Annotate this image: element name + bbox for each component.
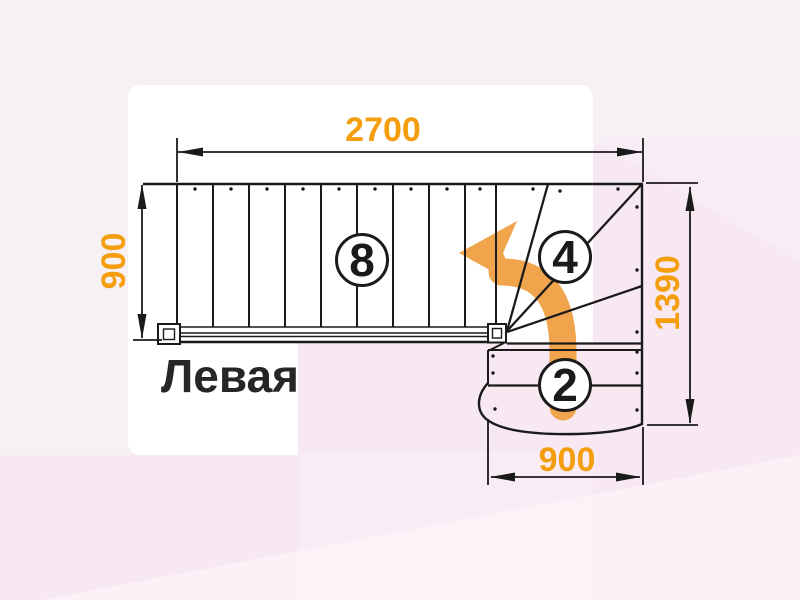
plan-title: Левая — [161, 352, 321, 400]
dim-arrow-down-icon — [138, 314, 147, 339]
stringer-rail — [158, 324, 506, 344]
step-count-lower: 2 — [538, 358, 592, 412]
step-count-winder-value: 4 — [552, 234, 578, 280]
dimension-label-top: 2700 — [323, 112, 443, 148]
dimension-label-right: 1390 — [650, 238, 686, 348]
turn-left-arrowhead-icon — [459, 221, 517, 285]
dim-arrow-down-icon — [686, 399, 695, 424]
dim-arrow-up-icon — [686, 186, 695, 211]
step-count-straight: 8 — [335, 233, 389, 287]
staircase-plan-screenshot: 8 4 2 2700 900 1390 900 Левая — [0, 0, 800, 600]
dimension-label-left: 900 — [96, 216, 132, 306]
dimension-label-bottom: 900 — [527, 442, 607, 478]
dim-arrow-right-icon — [617, 148, 642, 157]
dim-arrow-left-icon — [490, 473, 515, 482]
dimension-left — [133, 185, 162, 340]
dim-arrow-up-icon — [138, 184, 147, 209]
dim-arrow-left-icon — [178, 148, 203, 157]
step-count-winder: 4 — [538, 230, 592, 284]
step-count-straight-value: 8 — [349, 237, 375, 283]
step-count-lower-value: 2 — [552, 362, 578, 408]
dim-arrow-right-icon — [616, 473, 641, 482]
